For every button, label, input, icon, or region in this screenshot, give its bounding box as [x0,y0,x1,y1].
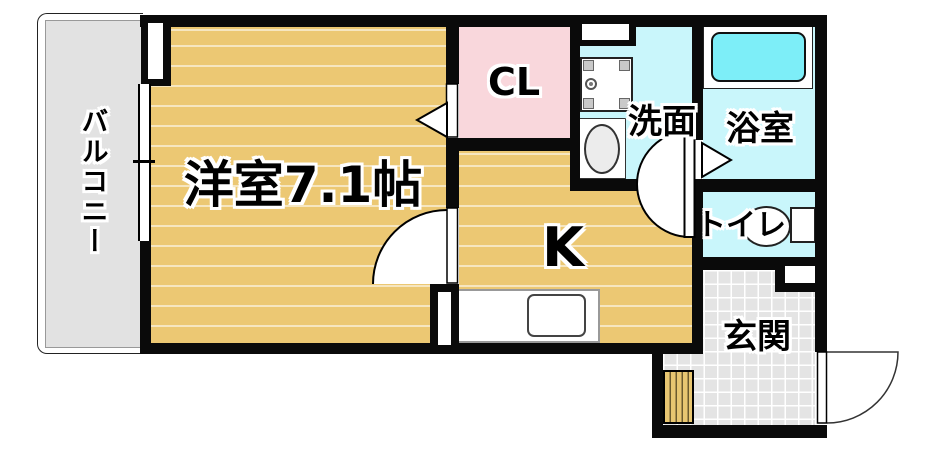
floor-plan: バルコニー 洋室7.1帖 CL K 洗面 浴室 トイレ 玄関 [0,0,941,451]
entrance-door-swing [827,352,898,423]
washroom-label: 洗面 [628,105,696,139]
washroom-door-swing [637,131,690,237]
kitchen-label: K [542,221,584,275]
toilet-label: トイレ [696,211,786,241]
western-room-label: 洋室7.1帖 [184,160,423,210]
entrance-label: 玄関 [723,320,791,354]
western-door-swing [373,210,447,284]
door-markers [0,0,941,451]
washroom-door-leaf [685,131,695,237]
balcony-label: バルコニー [79,107,106,257]
western-door-leaf [447,208,458,283]
closet-door-triangle [417,103,447,137]
closet-door-leaf [447,84,458,137]
closet-label: CL [488,63,540,101]
entrance-door-leaf [818,352,827,423]
bathroom-label: 浴室 [726,112,794,146]
